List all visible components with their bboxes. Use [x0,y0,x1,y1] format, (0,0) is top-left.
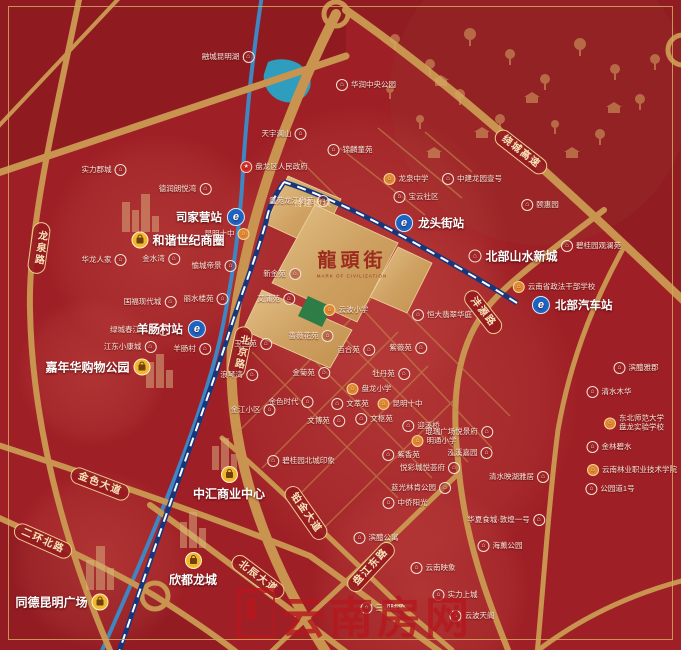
building-icon: ⌂ [442,173,454,185]
building-icon: ⌂ [587,386,599,398]
shopping-bag-icon [220,466,237,483]
building-icon: ⌂ [322,330,334,342]
map-poi: ⌂文枢苑 [355,413,393,425]
map-poi: ⌂文萃苑 [331,398,369,410]
poi-label: 德润朗悦湾 [159,185,197,194]
map-poi: 德润朗悦湾⌂ [159,183,212,195]
map-poi: ⌂碧桂园北城印象 [267,455,335,467]
poi-label: 碧桂园北城印象 [282,457,335,466]
building-icon: ⌂ [199,183,211,195]
poi-label: 中侨阳光 [398,499,428,508]
building-icon: ⌂ [411,562,423,574]
map-poi: ⌂碧桂园观澜苑 [561,240,621,252]
building-icon: ⌂ [225,260,237,272]
map-poi: 实力郡城⌂ [82,164,127,176]
poi-label: 滨醴雅郡 [629,364,659,373]
poi-label: 云南林业职业技术学院 [602,466,677,475]
poi-label: 蔷薇花苑 [289,332,319,341]
map-poi: 天宇澜山⌂ [262,128,307,140]
map-poi: 牡丹苑⌂ [372,368,410,380]
shopping-bag-icon [131,232,148,249]
poi-label: 羊肠村 [173,345,196,354]
map-poi: ⌂海薰公园 [478,540,523,552]
building-icon: ⌂ [415,342,427,354]
map-poi: 丽水楼苑⌂ [184,293,229,305]
poi-label: 玉兰苑 [234,340,257,349]
building-icon: ⌂ [336,79,348,91]
map-poi: 百合苑⌂ [337,344,375,356]
school-icon: ⌂ [384,173,396,185]
map-poi: 悦彩城悦荟府⌂ [400,462,460,474]
school-icon: ⌂ [347,383,359,395]
project-subtitle: MARK OF CIVILIZATION [317,274,387,279]
building-icon: ⌂ [383,497,395,509]
building-icon: ⌂ [355,413,367,425]
landmark-label: 同德昆明广场 [15,594,87,611]
map-poi: ⌂华润中央公园 [336,79,396,91]
poi-label: 金江小区 [231,406,261,415]
metro-icon: e [395,214,413,232]
map-poi: 华夏食城·敦煌一号⌂ [467,514,545,526]
poi-label: 浪琴湾 [220,371,243,380]
building-icon: ⌂ [354,532,366,544]
location-map: 龙泉路北京路绕城高速沣源路金色大道二环北路北辰大道铂金大道盘江东路司家营站ee龙… [0,0,681,650]
poi-label: 泓溪嘉园 [448,449,478,458]
station-label: 司家营站 [176,209,222,225]
building-icon: ⌂ [537,471,549,483]
government-icon: ★ [240,161,252,173]
building-icon: ⌂ [521,199,533,211]
metro-icon: e [532,296,550,314]
map-poi: 愉城帝景⌂ [192,260,237,272]
building-icon: ⌂ [295,128,307,140]
school-icon: ⌂ [587,464,599,476]
station-sijiaying: 司家营站e [176,208,245,226]
poi-label: 清水木华 [602,388,632,397]
poi-label: 蓝光林肯公园 [391,484,436,493]
map-poi: 浪琴湾⌂ [220,369,258,381]
building-icon: ⌂ [614,362,626,374]
map-poi: ⌂昆明十中 [378,398,423,410]
landmark-label: 和谐世纪商圈 [152,232,224,249]
poi-label: 颐惠园 [536,201,559,210]
project-name: 龍頭街 [317,246,387,273]
landmark-jianianhua-park: 嘉年华购物公园 [45,359,150,376]
poi-label: 盘龙区人民政府 [255,163,308,172]
map-poi: ⌂颐惠园 [521,199,559,211]
building-icon: ⌂ [217,293,229,305]
poi-label: 龙泉中学 [399,175,429,184]
poi-label: 华夏食城·敦煌一号 [467,516,530,525]
poi-label: 盘龙小学 [362,385,392,394]
building-icon: ⌂ [144,341,156,353]
shopping-bag-icon [134,359,151,376]
landmark-label: 北部山水新城 [485,248,557,265]
poi-label: 华润中央公园 [351,81,396,90]
poi-label: 紫香苑 [397,451,420,460]
building-icon: ⌂ [398,368,410,380]
poi-label: 明通小学 [427,437,457,446]
poi-label: 天宇澜山 [262,130,292,139]
poi-label: 艾蒲苑 [257,295,280,304]
poi-label: 丽水楼苑 [184,295,214,304]
map-poi: 华龙人家⌂ [82,254,127,266]
poi-label: 百合苑 [337,346,360,355]
poi-label: 文枢苑 [370,415,393,424]
map-poi: ⌂东北师范大学盘龙实验学校 [604,415,664,432]
metro-icon: e [188,320,206,338]
map-poi: 艾蒲苑⌂ [257,293,295,305]
building-icon: ⌂ [533,514,545,526]
school-icon: ⌂ [604,417,616,429]
area-ring-icon: ⌂ [468,250,481,263]
project-logo: 龍頭街 MARK OF CIVILIZATION [317,246,387,279]
building-icon: ⌂ [260,338,272,350]
building-icon: ⌂ [448,462,460,474]
building-icon: ⌂ [318,367,330,379]
watermark-text: 云南房网 [281,582,473,646]
poi-label: 东北师范大学盘龙实验学校 [619,415,664,432]
building-icon: ⌂ [587,441,599,453]
station-label: 北部汽车站 [555,297,613,313]
station-longtoujie: e龙头街站 [395,214,464,232]
building-icon: ⌂ [246,369,258,381]
map-poi: ⌂龙泉中学 [384,173,429,185]
map-poi: 金菊苑⌂ [292,367,330,379]
building-icon: ⌂ [242,51,254,63]
poi-label: 文博苑 [307,417,330,426]
map-poi: ⌂宝云社区 [394,191,439,203]
poi-label: 锦麟童苑 [343,146,373,155]
poi-label: 恒大翡翠华庭 [427,311,472,320]
map-poi: 泓溪嘉园⌂ [448,447,493,459]
poi-label: 融城昆明湖 [202,53,240,62]
parcel-tag: 待建地块 [294,197,332,209]
map-poi: 紫薇苑⌂ [389,342,427,354]
map-poi: 新金苑⌂ [263,268,301,280]
building-icon: ⌂ [402,420,414,432]
poi-label: 悦彩城悦荟府 [400,464,445,473]
station-label: 龙头街站 [418,215,464,231]
building-icon: ⌂ [478,540,490,552]
building-icon: ⌂ [481,426,493,438]
building-icon: ⌂ [328,144,340,156]
map-poi: 江东小康城⌂ [104,341,157,353]
landmark-label: 嘉年华购物公园 [45,359,129,376]
poi-label: 紫薇苑 [389,344,412,353]
poi-label: 海薰公园 [493,542,523,551]
map-poi: ⌂云南林业职业技术学院 [587,464,677,476]
poi-label: 江东小康城 [104,343,142,352]
building-icon: ⌂ [115,254,127,266]
poi-label: 金林碧水 [602,443,632,452]
building-icon: ⌂ [302,396,314,408]
map-poi: 文博苑⌂ [307,415,345,427]
map-poi: 清水映湖雅居⌂ [489,471,549,483]
map-poi: ⌂公园道1号 [585,483,634,495]
building-icon: ⌂ [561,240,573,252]
shopping-bag-icon [184,552,201,569]
poi-label: 金菊苑 [292,369,315,378]
building-icon: ⌂ [264,404,276,416]
school-icon: ⌂ [238,228,250,240]
building-icon: ⌂ [412,309,424,321]
station-yangchangcun: 羊肠村站e [137,320,206,338]
landmark-xindu-longcheng: 欣都龙城 [169,552,217,588]
poi-label: 碧桂园观澜苑 [576,242,621,251]
building-icon: ⌂ [267,455,279,467]
map-poi: 蓝光林肯公园⌂ [391,482,451,494]
poi-label: 云波小学 [339,306,369,315]
watermark-logo-icon [236,588,275,640]
poi-label: 清水映湖雅居 [489,473,534,482]
poi-label: 实力郡城 [82,166,112,175]
school-icon: ⌂ [378,398,390,410]
building-icon: ⌂ [382,449,394,461]
map-poi: 羊肠村⌂ [173,343,211,355]
map-poi: 融城昆明湖⌂ [202,51,255,63]
map-poi: ⌂紫香苑 [382,449,420,461]
poi-label: 愉城帝景 [192,262,222,271]
landmark-beibu-newtown: ⌂北部山水新城 [468,248,557,265]
map-poi: ⌂云南省政法干部学校 [513,281,596,293]
station-beibu-bus: e北部汽车站 [532,296,613,314]
poi-label: 滨醴公寓 [369,534,399,543]
metro-icon: e [227,208,245,226]
building-icon: ⌂ [283,293,295,305]
building-icon: ⌂ [363,344,375,356]
map-poi: ⌂中建龙园壹号 [442,173,502,185]
poi-label: 新金苑 [263,270,286,279]
landmark-hexie-cbd: 和谐世纪商圈 [131,232,224,249]
building-icon: ⌂ [333,415,345,427]
building-icon: ⌂ [164,296,176,308]
map-poi: ⌂滨醴公寓 [354,532,399,544]
map-poi: 金江小区⌂ [231,404,276,416]
map-poi: ⌂中侨阳光 [383,497,428,509]
map-poi: ⌂金林碧水 [587,441,632,453]
poi-label: 文萃苑 [346,400,369,409]
map-poi: ⌂滨醴雅郡 [614,362,659,374]
poi-label: 华龙人家 [82,256,112,265]
map-poi: ⌂明通小学 [412,435,457,447]
shopping-bag-icon [92,594,109,611]
poi-label: 宝云社区 [409,193,439,202]
station-label: 羊肠村站 [137,321,183,337]
school-icon: ⌂ [513,281,525,293]
map-poi: 蔷薇花苑⌂ [289,330,334,342]
building-icon: ⌂ [289,268,301,280]
poi-label: 金水湾 [142,255,165,264]
map-poi: ⌂云南映象 [411,562,456,574]
building-icon: ⌂ [439,482,451,494]
school-icon: ⌂ [324,304,336,316]
poi-label: 云南映象 [426,564,456,573]
map-poi: ⌂恒大翡翠华庭 [412,309,472,321]
poi-label: 昆明十中 [393,400,423,409]
landmark-label: 欣都龙城 [169,571,217,588]
building-icon: ⌂ [331,398,343,410]
landmark-tongde-plaza: 同德昆明广场 [15,594,108,611]
poi-label: 国福现代城 [124,298,162,307]
map-poi: 金水湾⌂ [142,253,180,265]
building-icon: ⌂ [115,164,127,176]
building-icon: ⌂ [481,447,493,459]
building-icon: ⌂ [168,253,180,265]
building-icon: ⌂ [394,191,406,203]
building-icon: ⌂ [585,483,597,495]
landmark-zhonghui-center: 中汇商业中心 [193,466,265,502]
map-poi: 国福现代城⌂ [124,296,177,308]
poi-label: 公园道1号 [600,485,634,494]
watermark: 云南房网 [236,582,473,646]
landmark-label: 中汇商业中心 [193,485,265,502]
poi-label: 云南省政法干部学校 [528,283,596,292]
building-icon: ⌂ [199,343,211,355]
map-poi: ⌂锦麟童苑 [328,144,373,156]
poi-label: 中建龙园壹号 [457,175,502,184]
map-base-art [0,0,681,650]
school-icon: ⌂ [412,435,424,447]
map-poi: ⌂云波小学 [324,304,369,316]
poi-label: 牡丹苑 [372,370,395,379]
map-poi: ★盘龙区人民政府 [240,161,308,173]
map-poi: 玉兰苑⌂ [234,338,272,350]
map-poi: ⌂盘龙小学 [347,383,392,395]
map-poi: ⌂清水木华 [587,386,632,398]
